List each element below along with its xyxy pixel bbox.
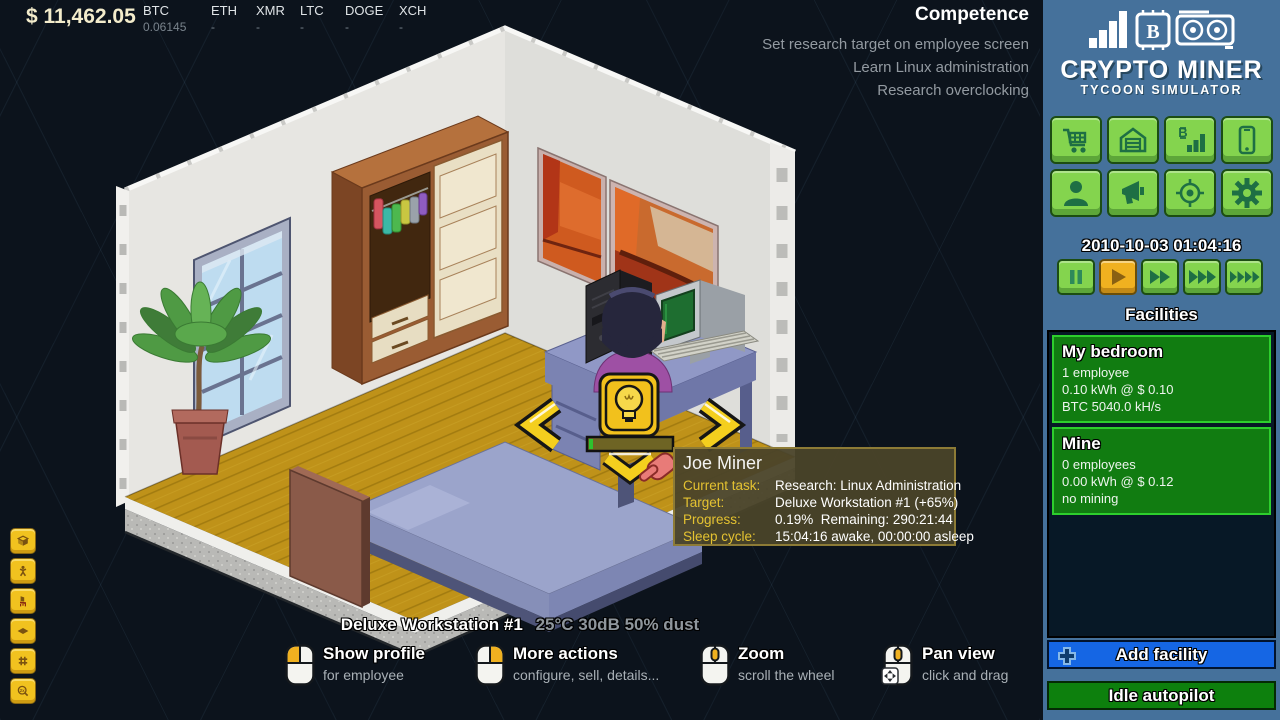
research-progress-bar	[587, 437, 673, 451]
grid-icon	[17, 651, 29, 671]
facilities-title: Facilities	[1043, 305, 1280, 325]
selection-status: Deluxe Workstation #1 25°C 30dB 50% dust	[0, 615, 1040, 635]
facility-card-mine[interactable]: Mine 0 employees 0.00 kWh @ $ 0.12 no mi…	[1052, 427, 1271, 515]
ff2-icon	[1148, 268, 1172, 286]
gpu-icon	[1177, 12, 1233, 49]
game-datetime: 2010-10-03 01:04:16	[1043, 236, 1280, 256]
play-button[interactable]	[1099, 259, 1137, 295]
room-scene[interactable]	[0, 0, 1040, 720]
objective-item: Learn Linux administration	[762, 56, 1029, 79]
money-balance: $ 11,462.05	[26, 5, 136, 29]
game-logo: B CRYPTO MINER TYCOON SIMULATOR	[1043, 6, 1280, 97]
iso-view-button[interactable]	[10, 528, 36, 554]
tooltip-employee-name: Joe Miner	[683, 453, 946, 474]
svg-text:2x: 2x	[20, 688, 26, 693]
employee-tooltip: Joe Miner Current task:Research: Linux A…	[673, 447, 956, 546]
person-icon	[1060, 177, 1092, 209]
play-icon	[1108, 267, 1128, 287]
hint-more-actions: More actionsconfigure, sell, details...	[475, 644, 659, 686]
game-viewport[interactable]: $ 11,462.05 BTC0.06145 ETH- XMR- LTC- DO…	[0, 0, 1040, 720]
furniture-button[interactable]	[10, 588, 36, 614]
zoom-2x-icon: 2x	[17, 680, 29, 702]
hint-zoom: Zoomscroll the wheel	[700, 644, 835, 686]
app-window: $ 11,462.05 BTC0.06145 ETH- XMR- LTC- DO…	[0, 0, 1280, 720]
objectives-title: Competence	[762, 4, 1029, 26]
selected-object-name: Deluxe Workstation #1	[341, 615, 523, 634]
grid-button[interactable]	[10, 648, 36, 674]
pause-button[interactable]	[1057, 259, 1095, 295]
phone-icon	[1231, 124, 1263, 156]
garage-button[interactable]	[1107, 116, 1159, 164]
settings-button[interactable]	[1221, 169, 1273, 217]
speed-controls	[1057, 259, 1263, 295]
walk-mode-button[interactable]	[10, 558, 36, 584]
ticker-ltc: LTC-	[300, 3, 324, 34]
garage-icon	[1117, 124, 1149, 156]
sidebar: B CRYPTO MINER TYCOON SIMULATOR	[1043, 0, 1280, 720]
ticker-xmr: XMR-	[256, 3, 285, 34]
fast-forward-2x-button[interactable]	[1141, 259, 1179, 295]
add-facility-button[interactable]: Add facility	[1047, 640, 1276, 669]
ticker-doge: DOGE-	[345, 3, 383, 34]
logo-title: CRYPTO MINER	[1043, 57, 1280, 83]
sidebar-nav: B	[1050, 116, 1276, 217]
logo-hardware-icons: B	[1087, 6, 1237, 52]
cart-icon	[1060, 124, 1092, 156]
mouse-wheel-icon	[700, 644, 730, 686]
employees-button[interactable]	[1050, 169, 1102, 217]
selected-object-metrics: 25°C 30dB 50% dust	[536, 615, 700, 634]
ff4-icon	[1229, 268, 1260, 286]
fast-forward-3x-button[interactable]	[1183, 259, 1221, 295]
mouse-wheel-drag-icon	[880, 644, 914, 686]
walker-icon	[17, 561, 29, 581]
mouse-right-click-icon	[475, 644, 505, 686]
phone-button[interactable]	[1221, 116, 1273, 164]
pause-icon	[1067, 268, 1085, 286]
svg-text:B: B	[1146, 21, 1159, 43]
iso-cube-icon	[17, 531, 29, 551]
mining-chart-icon: B	[1174, 124, 1206, 156]
idle-autopilot-button[interactable]: Idle autopilot	[1047, 681, 1276, 710]
bar-chart-icon	[1089, 11, 1127, 48]
research-bulb-indicator[interactable]	[600, 374, 658, 436]
bitcoin-chip-icon: B	[1137, 10, 1169, 50]
hint-pan-view: Pan viewclick and drag	[880, 644, 1008, 686]
shop-button[interactable]	[1050, 116, 1102, 164]
floor-tile-button[interactable]	[10, 618, 36, 644]
tile-icon	[17, 621, 29, 641]
objectives-panel: Competence Set research target on employ…	[762, 4, 1029, 102]
ff3-icon	[1188, 268, 1216, 286]
crosshair-icon	[1174, 177, 1206, 209]
objective-item: Research overclocking	[762, 79, 1029, 102]
ticker-xch: XCH-	[399, 3, 426, 34]
logo-subtitle: TYCOON SIMULATOR	[1043, 83, 1280, 97]
hint-show-profile: Show profilefor employee	[285, 644, 425, 686]
chair-icon	[17, 591, 29, 611]
fast-forward-4x-button[interactable]	[1225, 259, 1263, 295]
gear-icon	[1231, 177, 1263, 209]
move-arrows-icon	[882, 668, 898, 684]
marketing-button[interactable]	[1107, 169, 1159, 217]
ticker-eth: ETH-	[211, 3, 237, 34]
zoom-level-button[interactable]: 2x	[10, 678, 36, 704]
ticker-btc: BTC0.06145	[143, 3, 186, 34]
mining-stats-button[interactable]: B	[1164, 116, 1216, 164]
facility-card-my-bedroom[interactable]: My bedroom 1 employee 0.10 kWh @ $ 0.10 …	[1052, 335, 1271, 423]
plus-icon	[1057, 646, 1077, 666]
targets-button[interactable]	[1164, 169, 1216, 217]
megaphone-icon	[1117, 177, 1149, 209]
mouse-left-click-icon	[285, 644, 315, 686]
objective-item: Set research target on employee screen	[762, 33, 1029, 56]
facilities-panel: My bedroom 1 employee 0.10 kWh @ $ 0.10 …	[1047, 330, 1276, 638]
